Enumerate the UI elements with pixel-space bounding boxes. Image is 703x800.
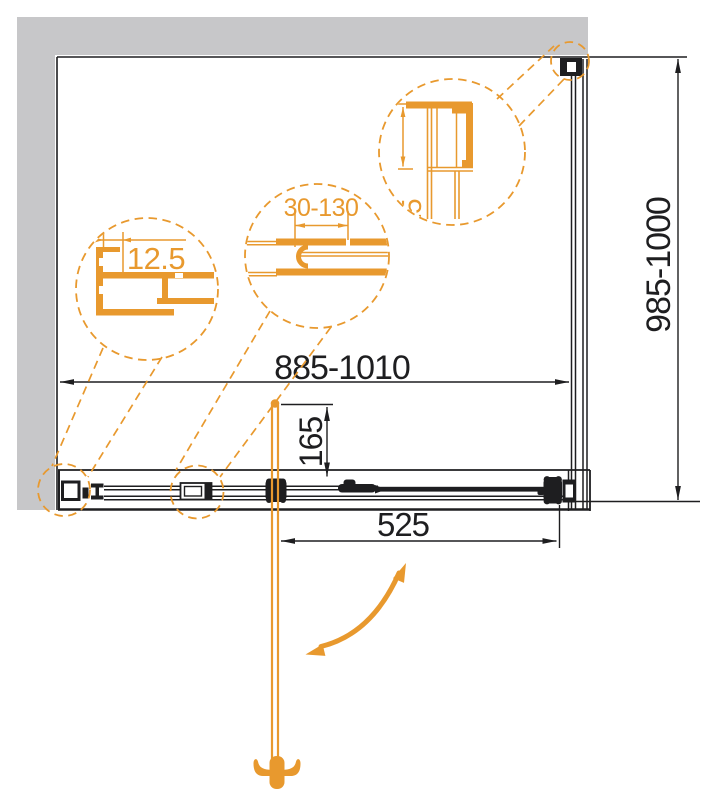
adjuster-top [91, 484, 104, 488]
detail-circle [379, 79, 525, 225]
door-swing-arrow-icon [306, 563, 407, 656]
profile-foot [462, 160, 473, 167]
profile-rail [406, 102, 472, 109]
swing-arc [321, 573, 399, 647]
wall-top [17, 17, 588, 55]
dimension-text-door-width: 525 [377, 506, 429, 543]
detail-text-adjustment-range: 30-130 [284, 194, 359, 222]
profile-notch [99, 258, 103, 266]
shower-enclosure-plan-drawing: 885-1010 985-1000 165 525 [0, 0, 703, 800]
roller-body [338, 484, 376, 493]
swing-arrowhead-sw [306, 644, 326, 656]
handle-mount-block [266, 479, 287, 504]
wall-left [17, 17, 55, 510]
arrow [95, 238, 104, 243]
grip-body [270, 756, 285, 789]
dimension-text-overall-width: 885-1010 [274, 349, 410, 387]
profile-rail [276, 269, 390, 276]
profile-post [162, 278, 168, 304]
end-nub [538, 487, 545, 495]
mount-body [266, 479, 287, 503]
door-glass-bold-segment [376, 487, 544, 492]
leader-line [88, 357, 162, 477]
corner-bracket-slot [566, 485, 574, 498]
profile-bar [466, 103, 473, 165]
grip-horn-right [285, 759, 301, 776]
leader-line [176, 311, 270, 470]
roller-carriage [338, 480, 386, 494]
dimension-text-handle-offset: 165 [293, 417, 329, 468]
side-glass-panel [560, 58, 590, 511]
leader-line [519, 77, 566, 126]
end-body [544, 477, 563, 504]
grip-horn-left [254, 759, 270, 776]
top-wall-bracket-slot [567, 62, 576, 72]
profile-bar [96, 247, 103, 315]
dimension-overall-width: 885-1010 [60, 349, 569, 387]
profile-notch [99, 286, 103, 294]
profile-rail [96, 309, 174, 316]
sliding-door-track [58, 470, 590, 510]
technical-drawing-page: 885-1010 985-1000 165 525 [0, 0, 703, 800]
roller-wheel [344, 480, 356, 487]
dimension-door-width: 525 [281, 505, 560, 548]
profile-step [103, 247, 120, 252]
detail-callout-wall-profile: 12.5 [38, 218, 218, 516]
leader-line [52, 348, 103, 466]
dimension-side-panel: 985-1000 [573, 59, 700, 502]
detail-text-wall-profile: 12.5 [127, 241, 185, 276]
handle-grip-icon [254, 756, 301, 789]
adjuster-bottom [91, 496, 104, 500]
splice-bracket-bar [205, 483, 212, 500]
detail-content-wall-profile: 12.5 [95, 232, 214, 316]
dimension-handle-offset: 165 [281, 405, 333, 477]
roller-tail [375, 485, 386, 494]
adjuster-stem [96, 488, 100, 496]
wall-profile-clip [83, 488, 89, 499]
profile-rail [276, 239, 390, 246]
detail-callout-corner-profile: 15 [379, 42, 589, 229]
dimension-text-side-panel: 985-1000 [640, 197, 678, 333]
wall-profile-section [63, 482, 80, 500]
